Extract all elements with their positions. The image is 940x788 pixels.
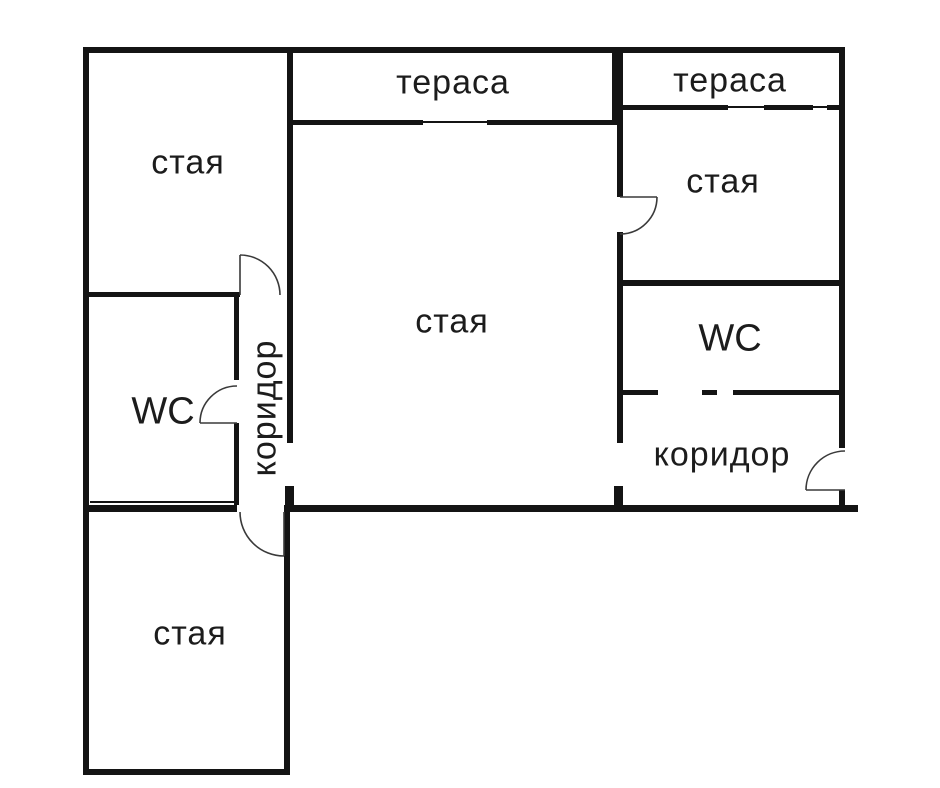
wall-bottom-main-b — [290, 505, 858, 512]
corridor-label-left: коридор — [246, 340, 285, 477]
room-label-right: стая — [686, 163, 760, 202]
wall-wc-right-bottom-dash — [702, 390, 717, 395]
wall-terrace-right-bottom-a — [620, 105, 728, 110]
corridor-label-right: коридор — [654, 436, 791, 475]
wall-corridor-left-a — [234, 292, 239, 380]
window-terrace-right-b — [813, 106, 827, 108]
wall-right-section-left-b — [617, 232, 623, 443]
wall-terrace-middle-right — [612, 50, 617, 125]
wall-main-left — [287, 47, 293, 443]
wall-terrace-middle-bottom-b — [487, 120, 618, 125]
wall-room-top-left-bottom — [83, 292, 240, 297]
window-terrace-right-a — [728, 106, 764, 108]
wall-bottom-main-a — [83, 505, 237, 512]
door-arc-corridor-right — [806, 451, 845, 490]
wall-corridor-left-b — [234, 423, 239, 505]
wc-label-left: WC — [131, 391, 194, 434]
wall-right-outer-a — [839, 47, 845, 448]
door-arc-room-bottom — [240, 512, 284, 556]
terrace-label-right: тераса — [673, 62, 787, 101]
wall-wc-right-bottom-a — [617, 390, 658, 395]
terrace-label-middle: тераса — [396, 64, 510, 103]
wall-room-right-bottom — [617, 280, 845, 286]
door-jamb-left — [285, 486, 294, 506]
room-label-top-left: стая — [151, 144, 225, 183]
wall-top — [83, 47, 845, 53]
wc-label-right: WC — [698, 318, 761, 361]
wall-terrace-middle-bottom-a — [290, 120, 423, 125]
doors — [200, 197, 845, 556]
floor-plan: стая тераса тераса стая стая WC WC корид… — [0, 0, 940, 788]
room-label-bottom: стая — [153, 615, 227, 654]
wall-wc-right-bottom-b — [733, 390, 845, 395]
door-arc-room-top-left — [240, 255, 280, 295]
door-jamb-right — [614, 486, 623, 506]
door-arc-room-right — [620, 197, 657, 234]
room-label-main: стая — [415, 303, 489, 342]
wall-right-section-left-a — [617, 47, 623, 197]
wall-terrace-right-bottom-b — [764, 105, 813, 110]
window-terrace-middle — [423, 121, 487, 123]
wall-room-bottom-bottom — [83, 769, 290, 775]
window-wc-left — [90, 501, 234, 503]
door-arc-wc-left — [200, 386, 237, 423]
wall-room-bottom-right — [284, 505, 290, 775]
wall-left-outer — [83, 47, 89, 775]
